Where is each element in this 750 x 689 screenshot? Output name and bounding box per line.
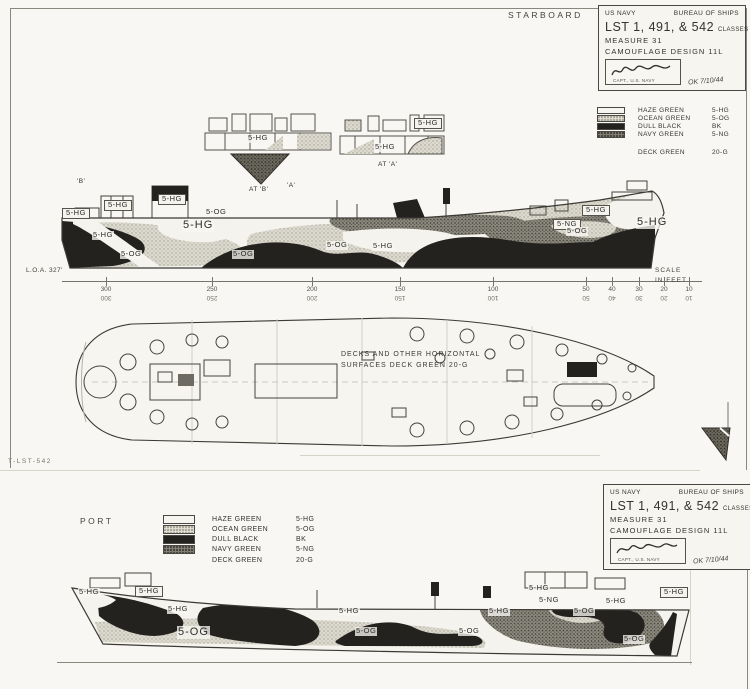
camo-area-label: 5-HG [528, 584, 550, 593]
camo-area-label: 5-HG [78, 588, 100, 597]
camo-area-label: 5-HG [605, 597, 627, 606]
camo-area-label: 5-OG [623, 635, 645, 644]
camo-area-label: 5-HG [167, 605, 189, 614]
camo-area-label: 5-OG [573, 607, 595, 616]
lower-annotations: 5-HG5-HG5-HG5-OG5-HG5-OG5-OG5-HG5-HG5-NG… [0, 0, 750, 689]
camo-area-label: 5-HG [660, 587, 688, 598]
blueprint-sheet: STARBOARD PORT US NAVY BUREAU OF SHIPS L… [0, 0, 750, 689]
camo-area-label: 5-HG [488, 607, 510, 616]
camo-area-label: 5-NG [538, 596, 560, 605]
camo-area-label: 5-OG [177, 626, 210, 639]
camo-area-label: 5-HG [135, 586, 163, 597]
camo-area-label: 5-OG [458, 627, 480, 636]
camo-area-label: 5-OG [355, 627, 377, 636]
camo-area-label: 5-HG [338, 607, 360, 616]
